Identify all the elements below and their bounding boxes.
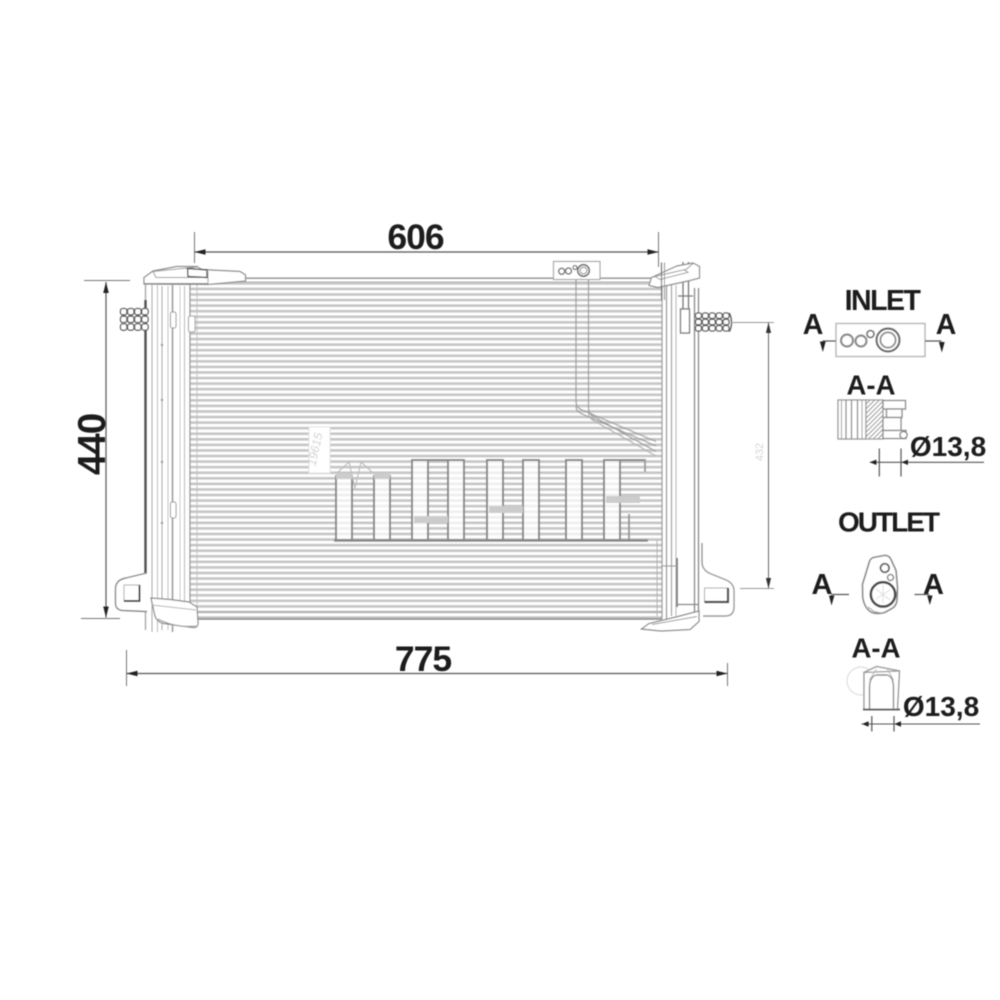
svg-text:A: A	[803, 309, 824, 341]
svg-text:A-A: A-A	[852, 633, 901, 664]
svg-text:A: A	[936, 309, 957, 341]
svg-text:Ø13,8: Ø13,8	[903, 691, 979, 722]
svg-text:606: 606	[387, 217, 443, 257]
svg-text:A-A: A-A	[847, 370, 896, 401]
svg-text:775: 775	[395, 639, 451, 679]
svg-text:432: 432	[754, 443, 766, 461]
svg-text:A: A	[923, 569, 944, 601]
svg-text:440: 440	[71, 414, 114, 475]
svg-text:Ø13,8: Ø13,8	[910, 431, 986, 462]
svg-text:OUTLET: OUTLET	[838, 507, 940, 538]
svg-text:INLET: INLET	[845, 285, 922, 317]
